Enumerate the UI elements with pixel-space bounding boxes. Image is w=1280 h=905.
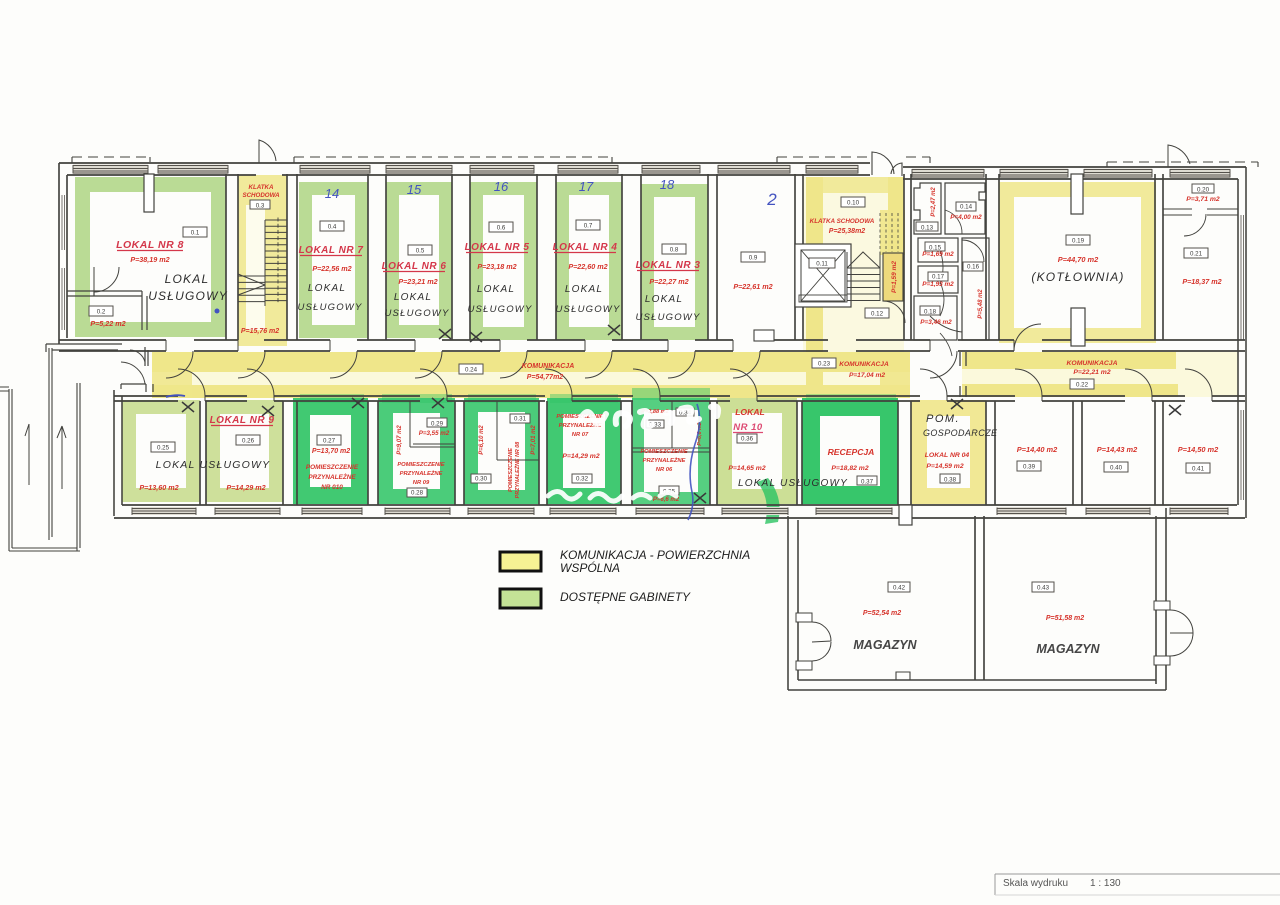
svg-text:0.27: 0.27	[323, 437, 336, 444]
svg-text:MAGAZYN: MAGAZYN	[853, 638, 917, 652]
svg-text:P=13,70 m2: P=13,70 m2	[312, 448, 350, 455]
svg-text:NR 06: NR 06	[656, 467, 673, 473]
svg-text:GOSPODARCZE: GOSPODARCZE	[923, 428, 998, 438]
svg-text:0.4: 0.4	[328, 223, 337, 230]
svg-text:P=3,46 m2: P=3,46 m2	[920, 319, 952, 326]
svg-text:0.3: 0.3	[256, 202, 265, 209]
svg-text:RECEPCJA: RECEPCJA	[828, 447, 875, 457]
svg-text:16: 16	[494, 179, 509, 194]
svg-text:LOKAL NR 4: LOKAL NR 4	[553, 242, 618, 253]
svg-text:P=5,48 m2: P=5,48 m2	[978, 289, 984, 319]
svg-text:LOKAL NR 8: LOKAL NR 8	[116, 239, 184, 251]
svg-text:0.17: 0.17	[932, 273, 945, 280]
svg-text:0.1: 0.1	[191, 229, 200, 236]
svg-text:KLATKA SCHODOWA: KLATKA SCHODOWA	[810, 218, 875, 225]
svg-text:0.11: 0.11	[816, 260, 828, 267]
svg-text:LOKAL NR 6: LOKAL NR 6	[382, 261, 447, 272]
svg-text:0.38: 0.38	[944, 476, 957, 483]
svg-text:LOKAL NR 04: LOKAL NR 04	[925, 452, 970, 459]
svg-text:0.21: 0.21	[1190, 250, 1203, 257]
svg-text:1 : 130: 1 : 130	[1090, 878, 1121, 889]
svg-text:P=2,47 m2: P=2,47 m2	[931, 187, 937, 217]
svg-text:0.30: 0.30	[475, 475, 488, 482]
svg-text:P=38,19 m2: P=38,19 m2	[130, 255, 169, 264]
svg-text:P=15,76 m2: P=15,76 m2	[241, 328, 279, 335]
svg-text:USŁUGOWY: USŁUGOWY	[148, 289, 228, 303]
svg-text:NR 09: NR 09	[413, 480, 430, 486]
svg-text:P=22,61 m2: P=22,61 m2	[733, 282, 772, 291]
svg-text:LOKAL USŁUGOWY: LOKAL USŁUGOWY	[738, 478, 848, 489]
svg-text:POMIESZCZENIE: POMIESZCZENIE	[397, 462, 445, 468]
svg-text:P=14,29 m2: P=14,29 m2	[226, 483, 265, 492]
svg-text:P=51,58 m2: P=51,58 m2	[1046, 615, 1084, 622]
svg-text:0.12: 0.12	[871, 310, 884, 317]
svg-text:P=1,59 m2: P=1,59 m2	[891, 261, 898, 293]
svg-text:KLATKA: KLATKA	[249, 184, 275, 191]
svg-text:P=1,69 m2: P=1,69 m2	[922, 251, 954, 258]
svg-text:P=18,82 m2: P=18,82 m2	[831, 465, 868, 472]
svg-text:14: 14	[325, 186, 339, 201]
svg-text:P=1,93 m2: P=1,93 m2	[922, 281, 954, 288]
svg-text:KOMUNIKACJA - POWIERZCHNIA: KOMUNIKACJA - POWIERZCHNIA	[560, 548, 750, 562]
svg-text:P=18,37 m2: P=18,37 m2	[1182, 277, 1221, 286]
svg-text:LOKAL: LOKAL	[394, 292, 432, 303]
svg-text:0.31: 0.31	[514, 415, 527, 422]
svg-text:P=6,10 m2: P=6,10 m2	[479, 425, 485, 455]
svg-text:0.40: 0.40	[1110, 464, 1123, 471]
svg-text:P=22,21 m2: P=22,21 m2	[1073, 369, 1110, 376]
svg-text:P=23,18 m2: P=23,18 m2	[477, 262, 516, 271]
svg-text:P=54,77m2: P=54,77m2	[527, 374, 563, 381]
svg-text:P=3,71 m2: P=3,71 m2	[1186, 196, 1220, 203]
svg-text:0.20: 0.20	[1197, 186, 1210, 193]
svg-text:DOSTĘPNE GABINETY: DOSTĘPNE GABINETY	[560, 590, 691, 604]
svg-text:P=22,27 m2: P=22,27 m2	[649, 277, 688, 286]
svg-text:Skala wydruku: Skala wydruku	[1003, 878, 1068, 889]
svg-text:USŁUGOWY: USŁUGOWY	[467, 304, 532, 315]
svg-text:P=5,22 m2: P=5,22 m2	[90, 319, 125, 328]
svg-text:POMIESZCZENIE: POMIESZCZENIE	[508, 448, 514, 492]
svg-text:LOKAL: LOKAL	[165, 272, 210, 286]
svg-text:USŁUGOWY: USŁUGOWY	[635, 312, 700, 323]
svg-text:LOKAL USŁUGOWY: LOKAL USŁUGOWY	[156, 459, 271, 471]
svg-text:NR 07: NR 07	[572, 432, 589, 438]
svg-text:0.14: 0.14	[960, 203, 973, 210]
svg-text:18: 18	[660, 177, 675, 192]
svg-text:0.2: 0.2	[97, 308, 106, 315]
svg-text:0.25: 0.25	[157, 444, 170, 451]
svg-text:2: 2	[766, 190, 777, 209]
svg-text:LOKAL: LOKAL	[645, 294, 683, 305]
svg-text:P=14,65 m2: P=14,65 m2	[728, 465, 765, 472]
svg-text:KOMUNIKACJA: KOMUNIKACJA	[1067, 360, 1118, 367]
svg-text:0.9: 0.9	[749, 254, 758, 261]
svg-text:0.26: 0.26	[242, 437, 255, 444]
svg-text:POMIESZCZENIE: POMIESZCZENIE	[640, 449, 688, 455]
svg-text:PRZYNALEŻNE: PRZYNALEŻNE	[308, 473, 356, 481]
svg-text:LOKAL NR 9: LOKAL NR 9	[210, 415, 275, 426]
svg-text:KOMUNIKACJA: KOMUNIKACJA	[522, 363, 575, 370]
svg-text:NR 10: NR 10	[733, 422, 763, 433]
svg-text:P=52,54 m2: P=52,54 m2	[863, 610, 901, 617]
svg-text:0.36: 0.36	[741, 435, 754, 442]
svg-text:PRZYNALEŻNE: PRZYNALEŻNE	[400, 470, 444, 477]
svg-text:POMIESZCZENIE: POMIESZCZENIE	[306, 464, 359, 471]
svg-text:P=22,56 m2: P=22,56 m2	[312, 264, 351, 273]
svg-text:P=14,59 m2: P=14,59 m2	[926, 463, 963, 470]
svg-text:LOKAL: LOKAL	[308, 283, 346, 294]
svg-text:P=14,40 m2: P=14,40 m2	[1017, 445, 1058, 454]
svg-text:0.29: 0.29	[431, 420, 444, 427]
svg-text:0.24: 0.24	[465, 366, 478, 373]
svg-text:KOMUNIKACJA: KOMUNIKACJA	[839, 361, 889, 368]
svg-text:0.8: 0.8	[670, 246, 679, 253]
svg-text:P=25,38m2: P=25,38m2	[829, 228, 865, 235]
svg-text:LOKAL: LOKAL	[565, 284, 603, 295]
svg-text:0.19: 0.19	[1072, 237, 1085, 244]
svg-text:PRZYNALEŻNE: PRZYNALEŻNE	[643, 457, 687, 464]
svg-text:0.10: 0.10	[847, 199, 860, 206]
svg-text:0.23: 0.23	[818, 360, 831, 367]
svg-text:MAGAZYN: MAGAZYN	[1036, 642, 1100, 656]
svg-text:PRZYNALEŻNE NR 08: PRZYNALEŻNE NR 08	[514, 442, 521, 499]
svg-text:SCHODOWA: SCHODOWA	[242, 192, 280, 199]
svg-text:0.7: 0.7	[584, 222, 593, 229]
svg-text:P=22,60 m2: P=22,60 m2	[568, 262, 607, 271]
svg-text:0.42: 0.42	[893, 584, 906, 591]
svg-text:P=14,50 m2: P=14,50 m2	[1178, 445, 1219, 454]
svg-text:0.28: 0.28	[411, 489, 424, 496]
svg-text:P=23,21 m2: P=23,21 m2	[398, 277, 437, 286]
svg-text:P=44,70 m2: P=44,70 m2	[1058, 255, 1099, 264]
svg-text:WSPÓLNA: WSPÓLNA	[560, 560, 620, 575]
svg-text:LOKAL: LOKAL	[735, 407, 765, 417]
svg-text:0.41: 0.41	[1192, 465, 1205, 472]
svg-text:P=13,60 m2: P=13,60 m2	[139, 483, 178, 492]
svg-text:POM.: POM.	[926, 413, 960, 425]
svg-text:P=9,07 m2: P=9,07 m2	[397, 425, 403, 455]
svg-text:0.6: 0.6	[497, 224, 506, 231]
svg-text:0.5: 0.5	[416, 247, 425, 254]
svg-text:0.16: 0.16	[967, 263, 980, 270]
svg-text:NR 010: NR 010	[321, 484, 343, 491]
svg-text:0.22: 0.22	[1076, 381, 1089, 388]
svg-text:LOKAL: LOKAL	[477, 284, 515, 295]
svg-text:17: 17	[579, 179, 594, 194]
svg-text:P=4,00 m2: P=4,00 m2	[950, 214, 982, 221]
svg-text:LOKAL NR 5: LOKAL NR 5	[465, 242, 530, 253]
svg-text:USŁUGOWY: USŁUGOWY	[555, 304, 620, 315]
svg-text:P=17,04 m2: P=17,04 m2	[849, 372, 885, 379]
svg-text:0.37: 0.37	[861, 478, 874, 485]
svg-text:0.18: 0.18	[924, 308, 937, 315]
svg-text:P=7,01 m2: P=7,01 m2	[531, 425, 537, 455]
svg-text:LOKAL NR 3: LOKAL NR 3	[636, 260, 701, 271]
svg-text:15: 15	[407, 182, 422, 197]
svg-text:0.43: 0.43	[1037, 584, 1050, 591]
svg-text:(KOTŁOWNIA): (KOTŁOWNIA)	[1031, 270, 1124, 284]
svg-text:P=14,29 m2: P=14,29 m2	[562, 453, 599, 460]
svg-text:0.32: 0.32	[576, 475, 589, 482]
svg-text:0.13: 0.13	[921, 224, 934, 231]
svg-text:USŁUGOWY: USŁUGOWY	[384, 308, 449, 319]
svg-text:P=14,43 m2: P=14,43 m2	[1097, 445, 1138, 454]
svg-text:P=3,55 m2: P=3,55 m2	[419, 430, 450, 437]
svg-text:LOKAL NR 7: LOKAL NR 7	[299, 245, 364, 256]
svg-text:USŁUGOWY: USŁUGOWY	[297, 302, 362, 313]
svg-text:0.39: 0.39	[1023, 463, 1036, 470]
